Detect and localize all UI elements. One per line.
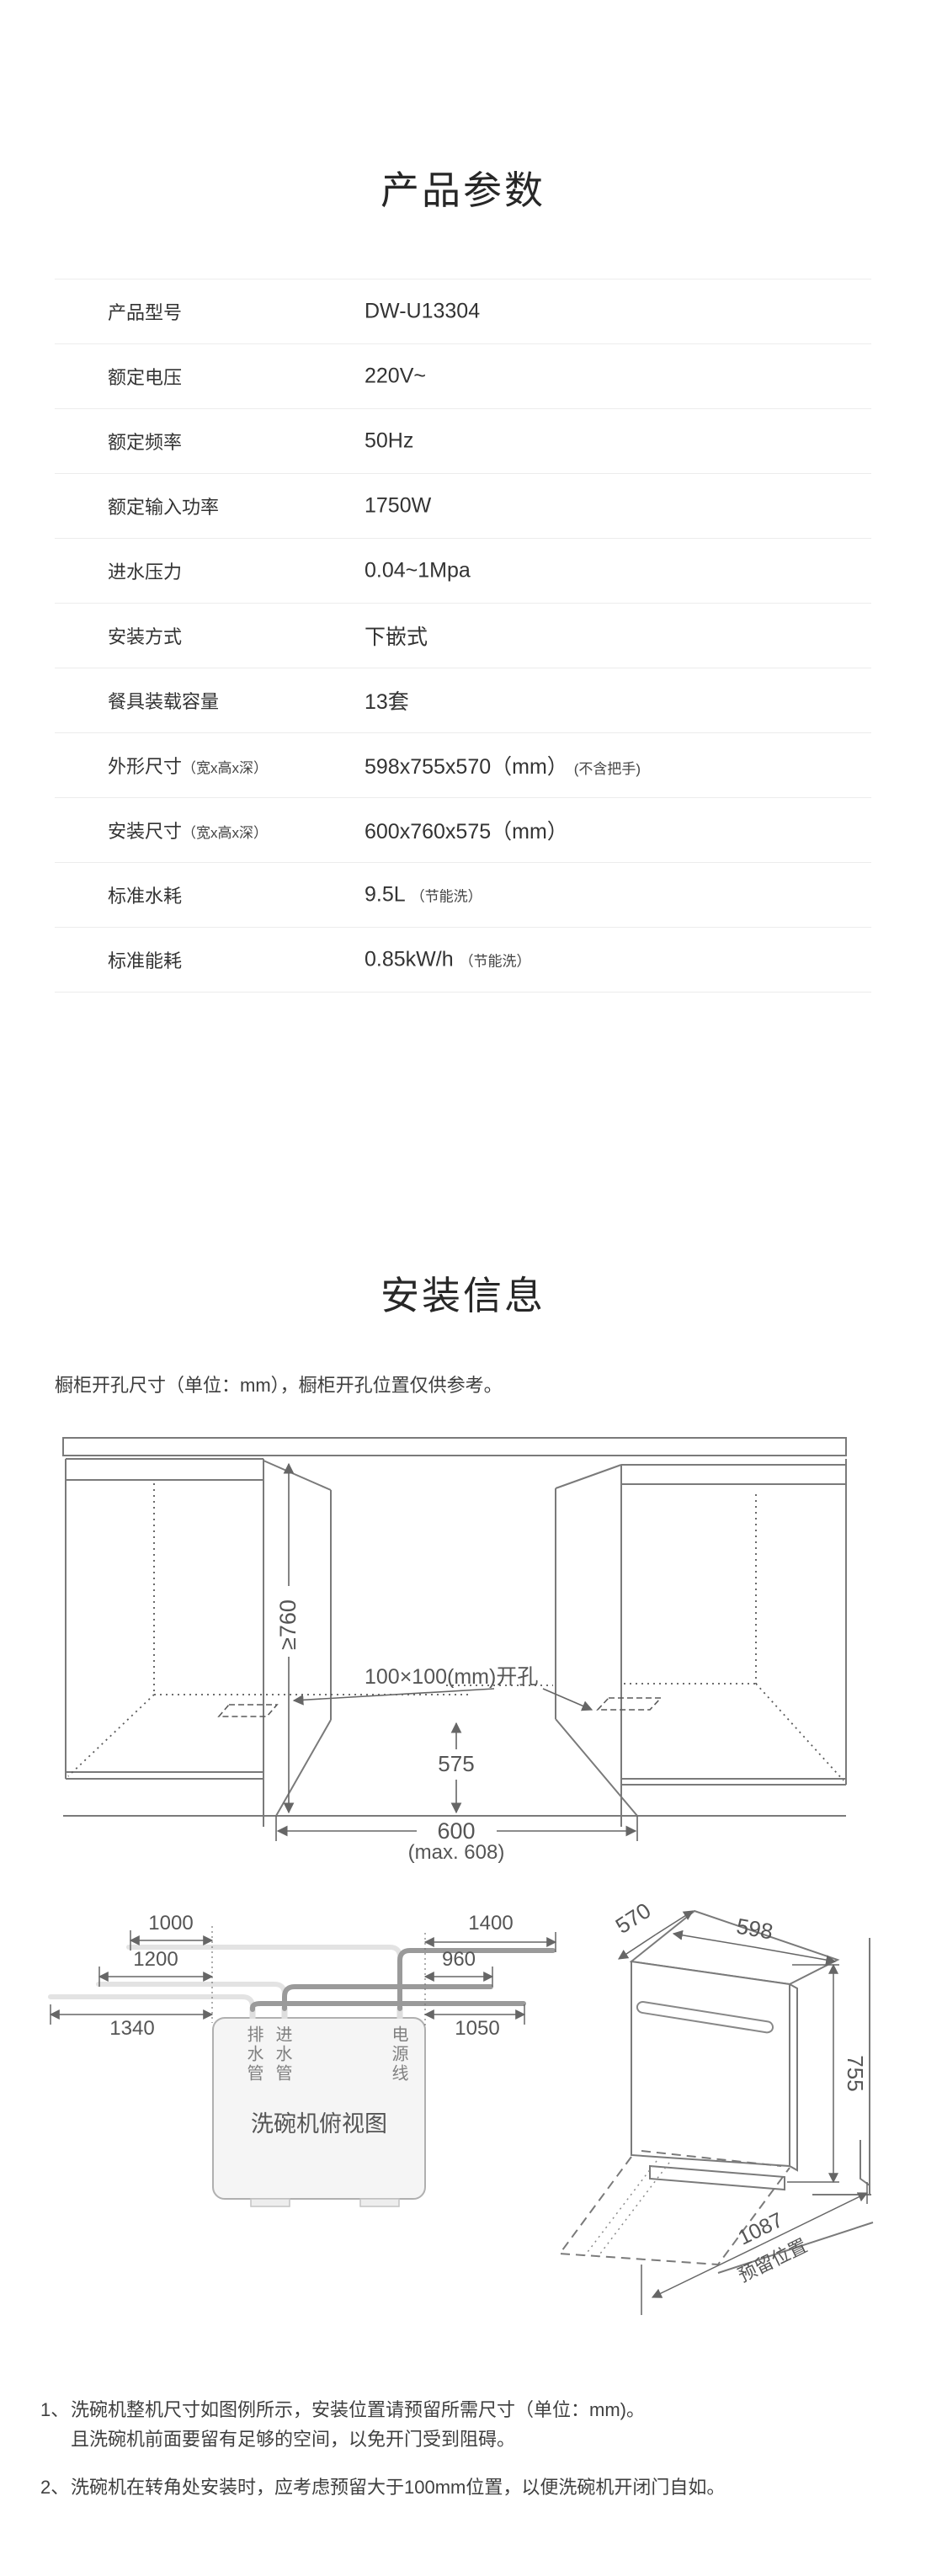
spec-label: 餐具装载容量 (108, 691, 219, 712)
spec-label: 进水压力 (108, 562, 182, 583)
spec-value-suffix: （节能洗） (411, 889, 482, 905)
spec-value: 50Hz (365, 429, 413, 453)
note-item: 2、 洗碗机在转角处安装时，应考虑预留大于100mm位置，以便洗碗机开闭门自如。 (40, 2472, 891, 2502)
table-row: 安装尺寸（宽x高x深） 600x760x575（mm） (55, 798, 871, 863)
dim-label-niche-height: ≥760 (275, 1599, 301, 1650)
dishwasher-foot (360, 2199, 399, 2206)
section-title-install-info: 安装信息 (0, 1265, 926, 1321)
installation-diagrams: 1000 1200 1340 1400 960 1050 洗碗机俯视图 (29, 1886, 897, 2349)
install-subtitle: 橱柜开孔尺寸（单位：mm），橱柜开孔位置仅供参考。 (55, 1370, 503, 1397)
table-row: 餐具装载容量 13套 (55, 668, 871, 733)
dim-label-machine-height: 755 (843, 2055, 868, 2091)
table-row: 进水压力 0.04~1Mpa (55, 539, 871, 604)
spec-label-suffix: （宽x高x深） (182, 825, 268, 841)
dishwasher-isometric-diagram: 570 598 755 1087 预留位置 (560, 1897, 873, 2315)
section-title-product-params: 产品参数 (0, 160, 926, 216)
spec-label: 标准能耗 (108, 950, 182, 971)
spec-value: DW-U13304 (365, 300, 480, 323)
spec-label: 产品型号 (108, 302, 182, 323)
dim-label-width-max: (max. 608) (408, 1841, 505, 1864)
dim-label-drain-right: 1050 (455, 2017, 499, 2040)
spec-value-suffix: （节能洗） (460, 954, 531, 970)
dim-label-inlet-left: 1200 (133, 1948, 178, 1971)
spec-value-suffix: (不含把手) (574, 761, 641, 777)
spec-value: 13套 (365, 690, 409, 714)
spec-value: 1750W (365, 494, 431, 518)
topview-title: 洗碗机俯视图 (251, 2111, 387, 2137)
dishwasher-topview-diagram: 1000 1200 1340 1400 960 1050 洗碗机俯视图 (51, 1912, 556, 2206)
table-row: 标准能耗 0.85kW/h （节能洗） (55, 928, 871, 993)
spec-value: 220V~ (365, 365, 426, 388)
note-line: 洗碗机在转角处安装时，应考虑预留大于100mm位置，以便洗碗机开闭门自如。 (71, 2472, 891, 2502)
dim-label-inlet-right: 960 (442, 1948, 476, 1971)
hoses-routed-left (51, 1947, 400, 2009)
note-line: 洗碗机整机尺寸如图例所示，安装位置请预留所需尺寸（单位：mm)。 (71, 2395, 891, 2424)
power-cord-label: 电源线 (390, 2025, 407, 2084)
dishwasher-foot (251, 2199, 290, 2206)
spec-table: 产品型号 DW-U13304 额定电压 220V~ 额定频率 50Hz 额定输入… (55, 279, 871, 993)
product-detail-page: 产品参数 产品型号 DW-U13304 额定电压 220V~ 额定频率 50Hz… (0, 0, 926, 2576)
spec-value: 下嵌式 (365, 625, 428, 649)
spec-value: 0.85kW/h (365, 948, 454, 971)
table-row: 标准水耗 9.5L （节能洗） (55, 863, 871, 928)
spec-value: 0.04~1Mpa (365, 559, 471, 583)
install-notes: 1、 洗碗机整机尺寸如图例所示，安装位置请预留所需尺寸（单位：mm)。 且洗碗机… (40, 2395, 891, 2502)
floor-cutout-dashed-rects (219, 1698, 661, 1716)
table-row: 外形尺寸（宽x高x深） 598x755x570（mm） (不含把手) (55, 733, 871, 798)
hoses-routed-right (253, 1951, 553, 2009)
spec-label: 额定电压 (108, 367, 182, 388)
table-row: 额定电压 220V~ (55, 344, 871, 409)
table-row: 安装方式 下嵌式 (55, 604, 871, 668)
spec-label: 额定输入功率 (108, 497, 219, 518)
dim-label-reserve: 1087 (734, 2208, 786, 2250)
hose-stubs (253, 2007, 400, 2019)
table-row: 产品型号 DW-U13304 (55, 279, 871, 344)
note-item: 1、 洗碗机整机尺寸如图例所示，安装位置请预留所需尺寸（单位：mm)。 且洗碗机… (40, 2395, 891, 2454)
dim-label-depth: 575 (438, 1751, 474, 1776)
table-row: 额定频率 50Hz (55, 409, 871, 474)
drain-hose-label: 排水管 (245, 2025, 262, 2084)
dim-label-hole: 100×100(mm)开孔 (365, 1665, 538, 1689)
spec-value: 9.5L (365, 883, 405, 907)
spec-label-suffix: （宽x高x深） (182, 760, 268, 776)
note-number: 1、 (40, 2395, 71, 2454)
inlet-hose-label: 进水管 (274, 2025, 290, 2084)
spec-label: 安装尺寸 (108, 821, 182, 842)
note-line: 且洗碗机前面要留有足够的空间，以免开门受到阻碍。 (71, 2424, 891, 2454)
dim-label-width: 600 (437, 1818, 475, 1844)
extension-dotted-lines (212, 1926, 425, 2025)
dim-label-power-left: 1000 (148, 1912, 193, 1935)
spec-label: 标准水耗 (108, 886, 182, 907)
table-row: 额定输入功率 1750W (55, 474, 871, 539)
spec-label: 安装方式 (108, 626, 182, 647)
dim-label-drain-left: 1340 (109, 2017, 154, 2040)
spec-value: 600x760x575（mm） (365, 820, 568, 844)
dim-label-power-right: 1400 (468, 1912, 513, 1935)
cabinet-cutout-diagram: ≥760 100×100(mm)开孔 575 600 (max. 608) (29, 1431, 897, 1865)
dim-label-machine-depth: 570 (611, 1897, 656, 1939)
spec-label: 外形尺寸 (108, 756, 182, 777)
spec-label: 额定频率 (108, 432, 182, 453)
hose-dimension-lines (51, 1930, 556, 2025)
spec-value: 598x755x570（mm） (365, 755, 568, 779)
note-number: 2、 (40, 2472, 71, 2502)
